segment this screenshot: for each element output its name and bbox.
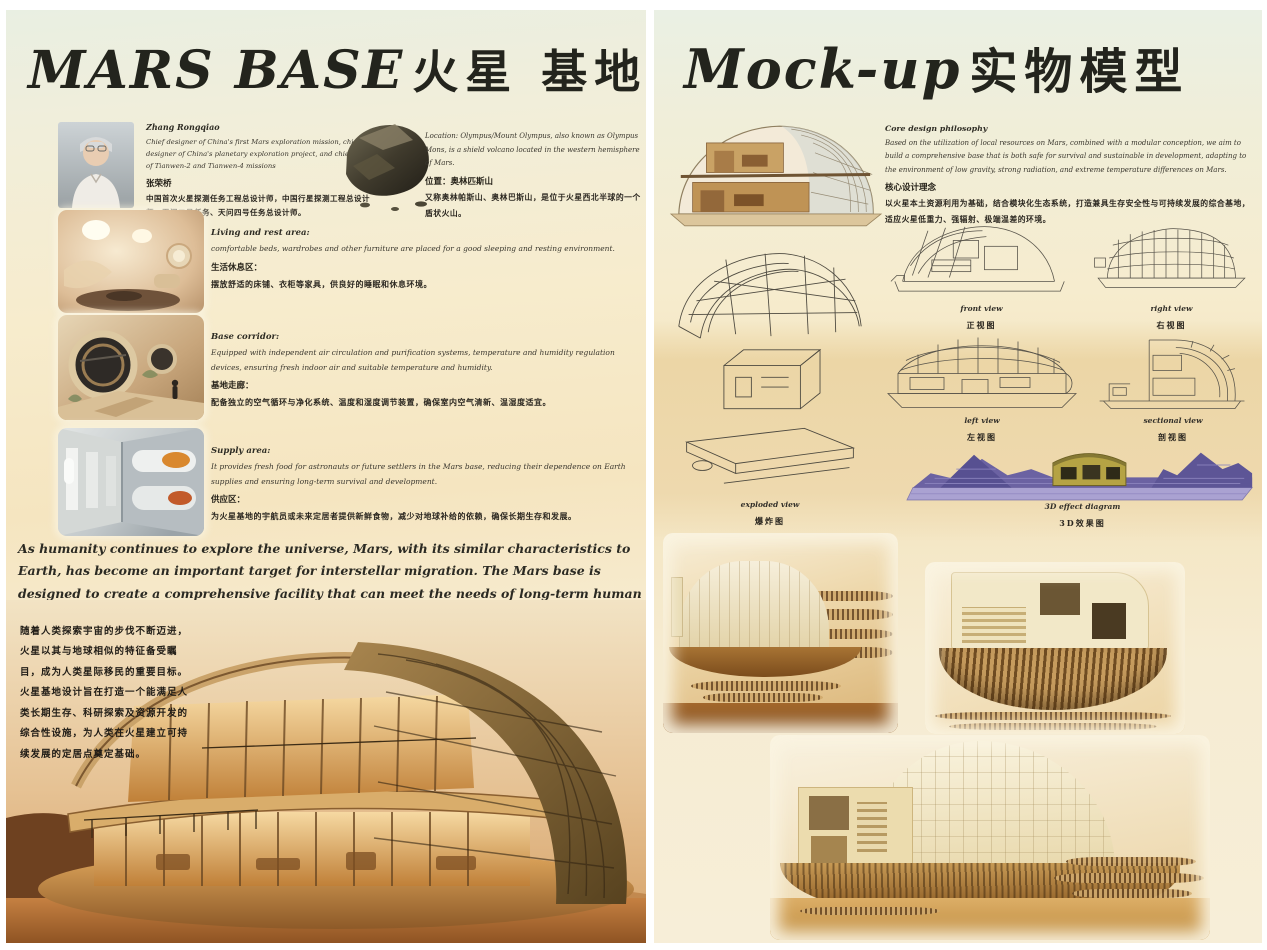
living-area-text: Living and rest area: comfortable beds, … [211, 228, 643, 292]
supply-area-body-en: It provides fresh food for astronauts or… [211, 460, 643, 489]
left-title-en: MARS BASE [28, 40, 404, 101]
intro-paragraph-zh: 随着人类探索宇宙的步伐不断迈进，火星以其与地球相似的特征备受瞩目，成为人类星际移… [20, 622, 196, 765]
base-corridor-body-zh: 配备独立的空气循环与净化系统、温度和湿度调节装置，确保室内空气清新、温湿度适宜。 [211, 394, 643, 410]
exploded-view-drawing [665, 240, 875, 495]
cutaway-render-photo [665, 113, 887, 237]
model-boat-base [669, 647, 861, 677]
cardboard-mound [800, 907, 940, 915]
effect-diagram-image-wrap [905, 428, 1260, 502]
photo-ground [770, 898, 1210, 940]
right-view-drawing [1089, 218, 1254, 300]
supply-area-render-photo [58, 428, 204, 536]
left-title-zh: 火星 基地 [412, 45, 646, 99]
base-corridor-title-en: Base corridor: [211, 332, 643, 342]
base-corridor-render-photo [58, 315, 204, 420]
living-area-image [58, 210, 204, 313]
living-area-title-zh: 生活休息区： [211, 261, 643, 273]
model-rooms-box [951, 572, 1149, 650]
sectional-view-image [1092, 328, 1254, 414]
left-view-image [882, 328, 1082, 414]
cardboard-strip [935, 712, 1171, 720]
left-poster-panel: MARS BASE火星 基地 Zhang Rongqiao Chief desi… [6, 10, 646, 943]
model-photo-c [770, 735, 1210, 940]
right-view-label-en: right view [1089, 304, 1254, 313]
effect-diagram-label-en: 3D effect diagram [905, 502, 1260, 511]
model-window [1040, 583, 1080, 615]
model-slats [962, 607, 1026, 643]
philosophy-title-en: Core design philosophy [885, 124, 1253, 133]
philosophy-text: Core design philosophy Based on the util… [885, 124, 1253, 228]
model-photo-a [663, 533, 898, 733]
right-title-en: Mock-up [684, 37, 961, 101]
front-view-drawing [889, 218, 1074, 300]
model-room [809, 796, 849, 830]
model-open-interior [798, 787, 913, 869]
exploded-view-label-en: exploded view [665, 500, 875, 509]
right-panel-title: Mock-up实物模型 [684, 32, 1189, 102]
supply-area-title-zh: 供应区： [211, 493, 643, 505]
supply-area-image [58, 428, 204, 536]
right-title-zh: 实物模型 [969, 44, 1189, 100]
model-woven-bowl [939, 648, 1167, 710]
photo-foreground-slab [663, 703, 898, 733]
philosophy-body-en: Based on the utilization of local resour… [885, 137, 1253, 177]
base-corridor-image [58, 315, 204, 420]
model-window [1092, 603, 1126, 639]
cardboard-mound [1054, 873, 1204, 883]
model-wing [671, 577, 683, 637]
base-corridor-title-zh: 基地走廊： [211, 379, 643, 391]
base-corridor-body-en: Equipped with independent air circulatio… [211, 346, 643, 375]
sectional-view-label-en: sectional view [1092, 416, 1254, 425]
philosophy-title-zh: 核心设计理念 [885, 181, 1253, 193]
supply-area-title-en: Supply area: [211, 446, 643, 456]
cardboard-mound [1072, 889, 1192, 898]
base-corridor-text: Base corridor: Equipped with independent… [211, 332, 643, 411]
model-room [811, 836, 847, 864]
right-poster-panel: Mock-up实物模型 Core design philosophy Based… [654, 10, 1262, 943]
cutaway-image [665, 113, 887, 237]
cardboard-strip [949, 723, 1157, 730]
effect-diagram-image [905, 428, 1260, 502]
designer-portrait-photo [58, 122, 134, 208]
left-view-label-en: left view [882, 416, 1082, 425]
right-view-image [1089, 218, 1254, 298]
portrait-image [58, 122, 134, 208]
front-view-image [889, 218, 1074, 298]
supply-area-body-zh: 为火星基地的宇航员或未来定居者提供新鲜食物，减少对地球补给的依赖，确保长期生存和… [211, 508, 643, 524]
location-info: Location: Olympus/Mount Olympus, also kn… [425, 130, 644, 222]
olympus-mons-rock-photo [325, 110, 437, 215]
effect-diagram-label-zh: 3D效果图 [905, 518, 1260, 529]
location-zh-label: 位置：奥林匹斯山 [425, 175, 644, 187]
living-area-title-en: Living and rest area: [211, 228, 643, 238]
left-view-drawing [882, 328, 1082, 414]
exploded-view-label-zh: 爆炸图 [665, 516, 875, 527]
living-area-body-en: comfortable beds, wardrobes and other fu… [211, 242, 643, 257]
model-slats [857, 802, 887, 852]
front-view-label-en: front view [889, 304, 1074, 313]
rock-image [325, 110, 437, 215]
living-area-body-zh: 摆放舒适的床铺、衣柜等家具，供良好的睡眠和休息环境。 [211, 276, 643, 292]
cardboard-mound [1066, 857, 1196, 866]
sectional-view-drawing [1092, 328, 1254, 414]
exploded-view-image [665, 240, 875, 495]
location-zh-desc: 又称奥林帕斯山、奥林巴斯山，是位于火星西北半球的一个盾状火山。 [425, 190, 644, 222]
location-en: Location: Olympus/Mount Olympus, also kn… [425, 130, 644, 171]
cardboard-mound [703, 693, 823, 702]
living-area-render-photo [58, 210, 204, 313]
model-shell [679, 561, 829, 653]
cardboard-mound [691, 681, 841, 691]
model-photo-b [925, 562, 1185, 734]
left-panel-title: MARS BASE火星 基地 [28, 36, 646, 102]
supply-area-text: Supply area: It provides fresh food for … [211, 446, 643, 525]
